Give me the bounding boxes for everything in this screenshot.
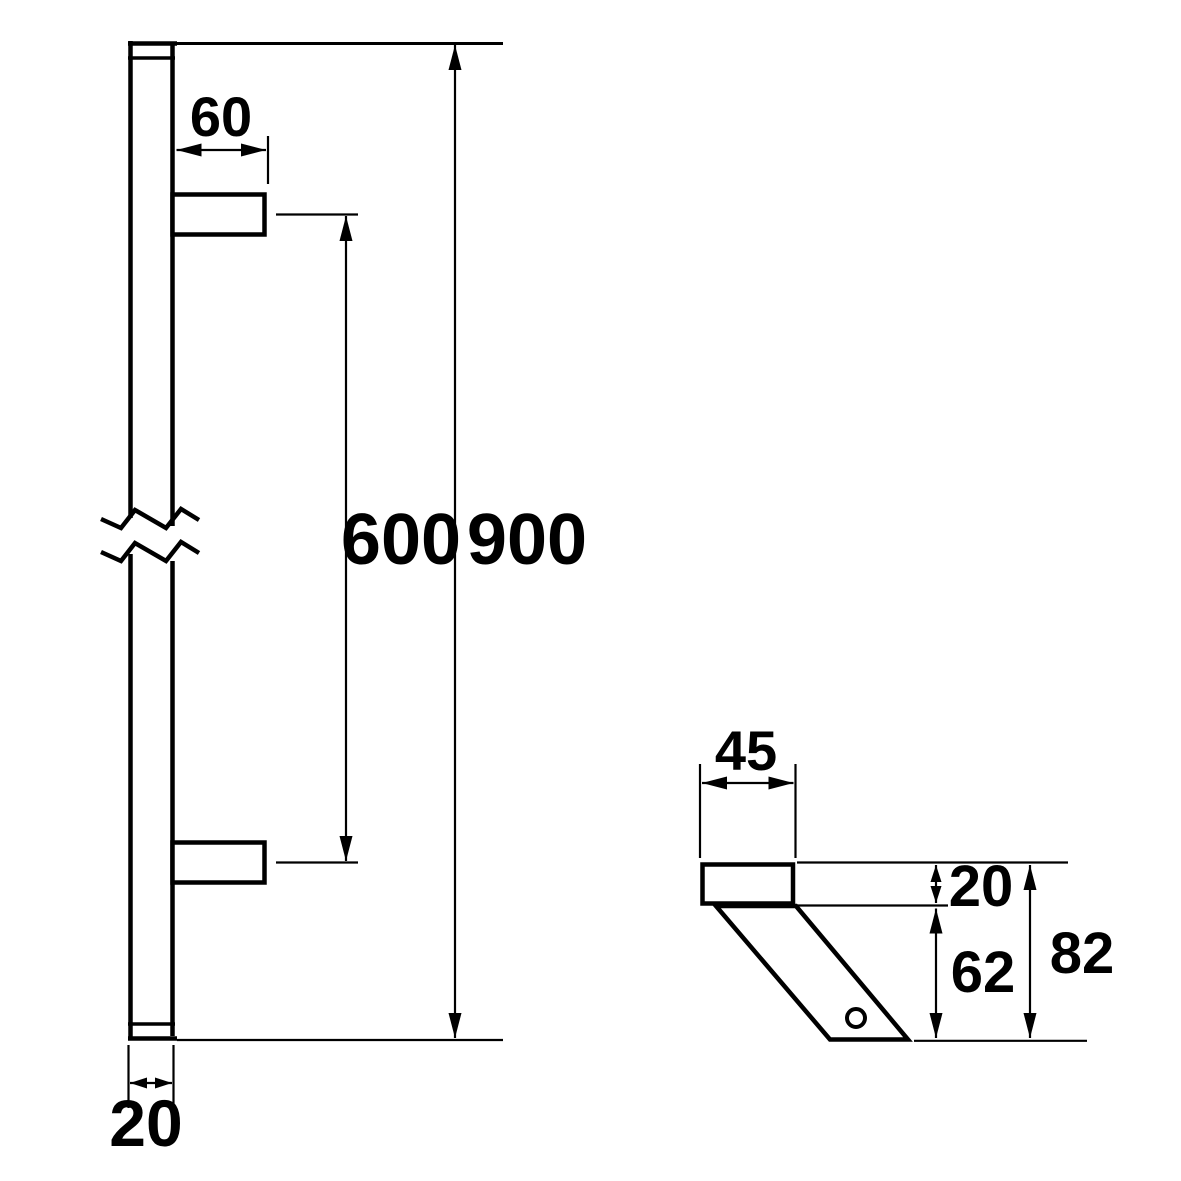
dim-bar-width: 20 — [109, 1045, 182, 1160]
drawing-svg: 60 600 900 20 — [0, 0, 1181, 1181]
dim-600-label: 600 — [341, 500, 461, 580]
dim-bracket-depth: 60 — [177, 85, 269, 184]
dim-overall-length: 900 — [455, 45, 587, 1038]
break-zigzag-lower — [101, 542, 199, 561]
bracket-arm — [716, 906, 908, 1040]
dim-62-label: 62 — [951, 940, 1016, 1005]
technical-drawing: 60 600 900 20 — [0, 0, 1181, 1181]
dim-900-label: 900 — [467, 500, 587, 580]
top-bracket — [173, 195, 265, 235]
dim-bracket-spacing: 600 — [276, 215, 461, 863]
screw-hole — [847, 1009, 865, 1027]
break-zigzag-upper — [101, 509, 199, 528]
dim-overall-projection: 82 — [1030, 865, 1114, 1038]
bottom-bracket — [173, 843, 265, 883]
wall-plate — [703, 865, 794, 904]
break-symbol — [101, 509, 199, 561]
dim-plate-thickness: 20 — [936, 854, 1013, 919]
dim-45-label: 45 — [715, 719, 777, 782]
dim-60-label: 60 — [190, 85, 252, 148]
dim-arm-drop: 62 — [936, 909, 1015, 1039]
dim-20-plate-label: 20 — [949, 854, 1014, 919]
dim-bracket-width: 45 — [700, 719, 796, 858]
dim-20-label: 20 — [109, 1086, 182, 1160]
dim-82-label: 82 — [1050, 921, 1115, 986]
bracket-detail-view: 45 20 62 82 — [700, 719, 1114, 1041]
side-view: 60 600 900 20 — [101, 41, 587, 1160]
